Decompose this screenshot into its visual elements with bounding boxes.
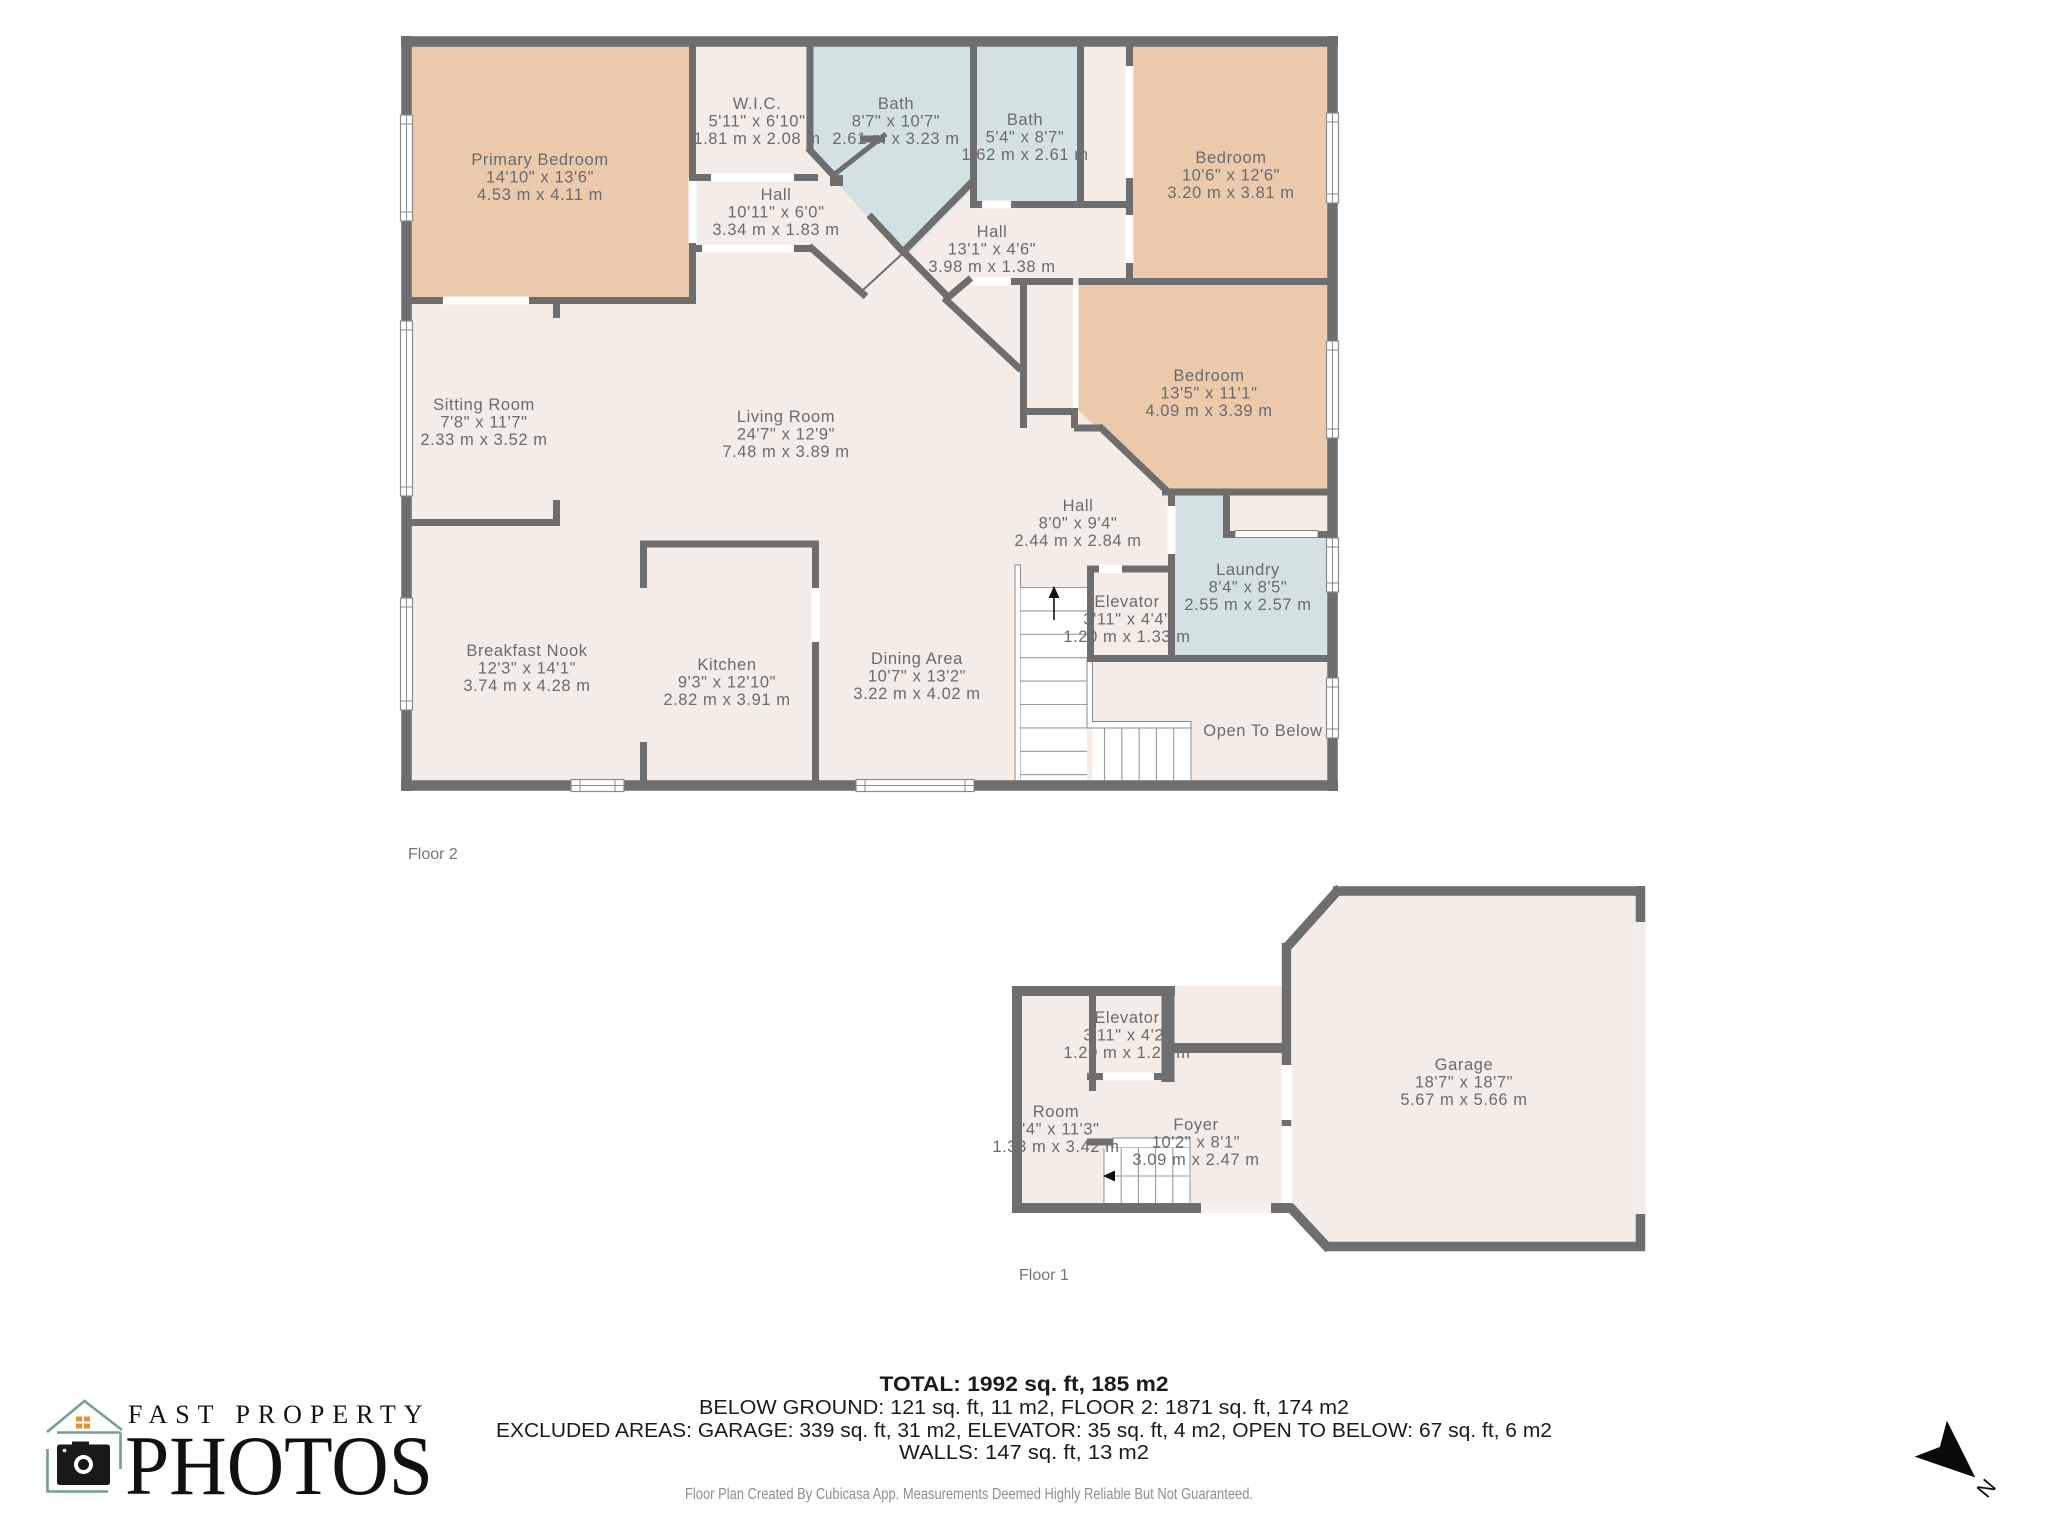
svg-text:8'7" x 10'7": 8'7" x 10'7" bbox=[852, 113, 941, 131]
svg-text:9'3" x 12'10": 9'3" x 12'10" bbox=[678, 674, 776, 692]
svg-text:10'11" x 6'0": 10'11" x 6'0" bbox=[727, 204, 824, 222]
svg-text:Room: Room bbox=[1033, 1103, 1079, 1121]
svg-text:Bath: Bath bbox=[878, 95, 914, 113]
svg-text:8'0" x 9'4": 8'0" x 9'4" bbox=[1039, 515, 1118, 533]
svg-text:3'11" x 4'4": 3'11" x 4'4" bbox=[1083, 611, 1170, 629]
svg-text:Floor 2: Floor 2 bbox=[408, 846, 458, 863]
svg-text:7.48 m x 3.89 m: 7.48 m x 3.89 m bbox=[722, 443, 849, 461]
svg-text:Bedroom: Bedroom bbox=[1195, 149, 1266, 167]
svg-text:Dining Area: Dining Area bbox=[871, 650, 963, 668]
svg-text:4'4" x 11'3": 4'4" x 11'3" bbox=[1012, 1121, 1099, 1139]
svg-text:24'7" x 12'9": 24'7" x 12'9" bbox=[737, 426, 835, 444]
svg-text:7'8" x 11'7": 7'8" x 11'7" bbox=[440, 414, 527, 432]
svg-text:Elevator: Elevator bbox=[1094, 1009, 1159, 1027]
svg-text:3.09 m x 2.47 m: 3.09 m x 2.47 m bbox=[1132, 1151, 1259, 1169]
svg-text:Hall: Hall bbox=[761, 186, 792, 204]
svg-text:Garage: Garage bbox=[1435, 1056, 1494, 1074]
svg-text:10'2" x 8'1": 10'2" x 8'1" bbox=[1152, 1134, 1241, 1152]
svg-text:14'10" x 13'6": 14'10" x 13'6" bbox=[486, 169, 594, 187]
svg-text:2.33 m x 3.52 m: 2.33 m x 3.52 m bbox=[420, 431, 547, 449]
svg-text:2.44 m x 2.84 m: 2.44 m x 2.84 m bbox=[1014, 532, 1141, 550]
svg-text:1.62 m x 2.61 m: 1.62 m x 2.61 m bbox=[961, 146, 1088, 164]
svg-text:13'1" x 4'6": 13'1" x 4'6" bbox=[948, 241, 1037, 259]
svg-text:Primary Bedroom: Primary Bedroom bbox=[471, 151, 608, 169]
svg-text:Kitchen: Kitchen bbox=[697, 656, 756, 674]
svg-text:2.82 m x 3.91 m: 2.82 m x 3.91 m bbox=[663, 691, 790, 709]
svg-text:13'5" x 11'1": 13'5" x 11'1" bbox=[1160, 385, 1257, 403]
svg-text:W.I.C.: W.I.C. bbox=[733, 95, 782, 113]
svg-text:3.22 m x 4.02 m: 3.22 m x 4.02 m bbox=[853, 685, 980, 703]
svg-text:2.61 m x 3.23 m: 2.61 m x 3.23 m bbox=[832, 130, 959, 148]
svg-text:10'6" x 12'6": 10'6" x 12'6" bbox=[1182, 167, 1280, 185]
svg-text:Bedroom: Bedroom bbox=[1173, 367, 1244, 385]
svg-text:10'7" x 13'2": 10'7" x 13'2" bbox=[868, 668, 966, 686]
svg-text:Floor Plan Created By Cubicasa: Floor Plan Created By Cubicasa App. Meas… bbox=[685, 1486, 1253, 1503]
svg-text:3.74 m x 4.28 m: 3.74 m x 4.28 m bbox=[463, 677, 590, 695]
svg-text:Living Room: Living Room bbox=[737, 408, 835, 426]
svg-text:18'7" x 18'7": 18'7" x 18'7" bbox=[1415, 1074, 1513, 1092]
svg-text:4.09 m x 3.39 m: 4.09 m x 3.39 m bbox=[1145, 402, 1272, 420]
svg-text:12'3" x 14'1": 12'3" x 14'1" bbox=[478, 660, 576, 678]
svg-text:Elevator: Elevator bbox=[1094, 593, 1159, 611]
svg-text:Hall: Hall bbox=[1063, 497, 1094, 515]
svg-text:WALLS: 147 sq. ft, 13 m2: WALLS: 147 sq. ft, 13 m2 bbox=[899, 1441, 1149, 1464]
svg-text:Bath: Bath bbox=[1007, 111, 1043, 129]
svg-text:2.55 m x 2.57 m: 2.55 m x 2.57 m bbox=[1184, 596, 1311, 614]
svg-text:Breakfast Nook: Breakfast Nook bbox=[466, 642, 587, 660]
svg-text:Open To Below: Open To Below bbox=[1203, 722, 1322, 740]
svg-text:5'11" x 6'10": 5'11" x 6'10" bbox=[708, 113, 805, 131]
svg-text:Hall: Hall bbox=[977, 223, 1008, 241]
svg-text:3'11" x 4'2": 3'11" x 4'2" bbox=[1083, 1027, 1170, 1045]
svg-text:TOTAL: 1992 sq. ft, 185 m2: TOTAL: 1992 sq. ft, 185 m2 bbox=[880, 1372, 1169, 1396]
svg-text:1.81 m x 2.08 m: 1.81 m x 2.08 m bbox=[693, 130, 820, 148]
svg-text:4.53 m x 4.11 m: 4.53 m x 4.11 m bbox=[477, 186, 603, 204]
svg-text:Floor 1: Floor 1 bbox=[1019, 1267, 1069, 1284]
svg-text:3.98 m x 1.38 m: 3.98 m x 1.38 m bbox=[928, 258, 1055, 276]
svg-text:EXCLUDED AREAS: GARAGE: 339 sq: EXCLUDED AREAS: GARAGE: 339 sq. ft, 31 m… bbox=[496, 1419, 1552, 1442]
svg-text:5.67 m x 5.66 m: 5.67 m x 5.66 m bbox=[1400, 1091, 1527, 1109]
svg-text:3.20 m x 3.81 m: 3.20 m x 3.81 m bbox=[1167, 184, 1294, 202]
svg-text:3.34 m x 1.83 m: 3.34 m x 1.83 m bbox=[712, 221, 839, 239]
svg-text:8'4" x 8'5": 8'4" x 8'5" bbox=[1209, 579, 1288, 597]
svg-text:PHOTOS: PHOTOS bbox=[125, 1419, 433, 1513]
svg-text:Laundry: Laundry bbox=[1216, 561, 1280, 579]
svg-text:Foyer: Foyer bbox=[1173, 1116, 1218, 1134]
svg-text:BELOW GROUND: 121 sq. ft, 11 m: BELOW GROUND: 121 sq. ft, 11 m2, FLOOR 2… bbox=[699, 1396, 1349, 1419]
svg-text:5'4" x 8'7": 5'4" x 8'7" bbox=[986, 129, 1065, 147]
svg-text:Sitting Room: Sitting Room bbox=[433, 396, 535, 414]
svg-text:N: N bbox=[1972, 1474, 2001, 1502]
